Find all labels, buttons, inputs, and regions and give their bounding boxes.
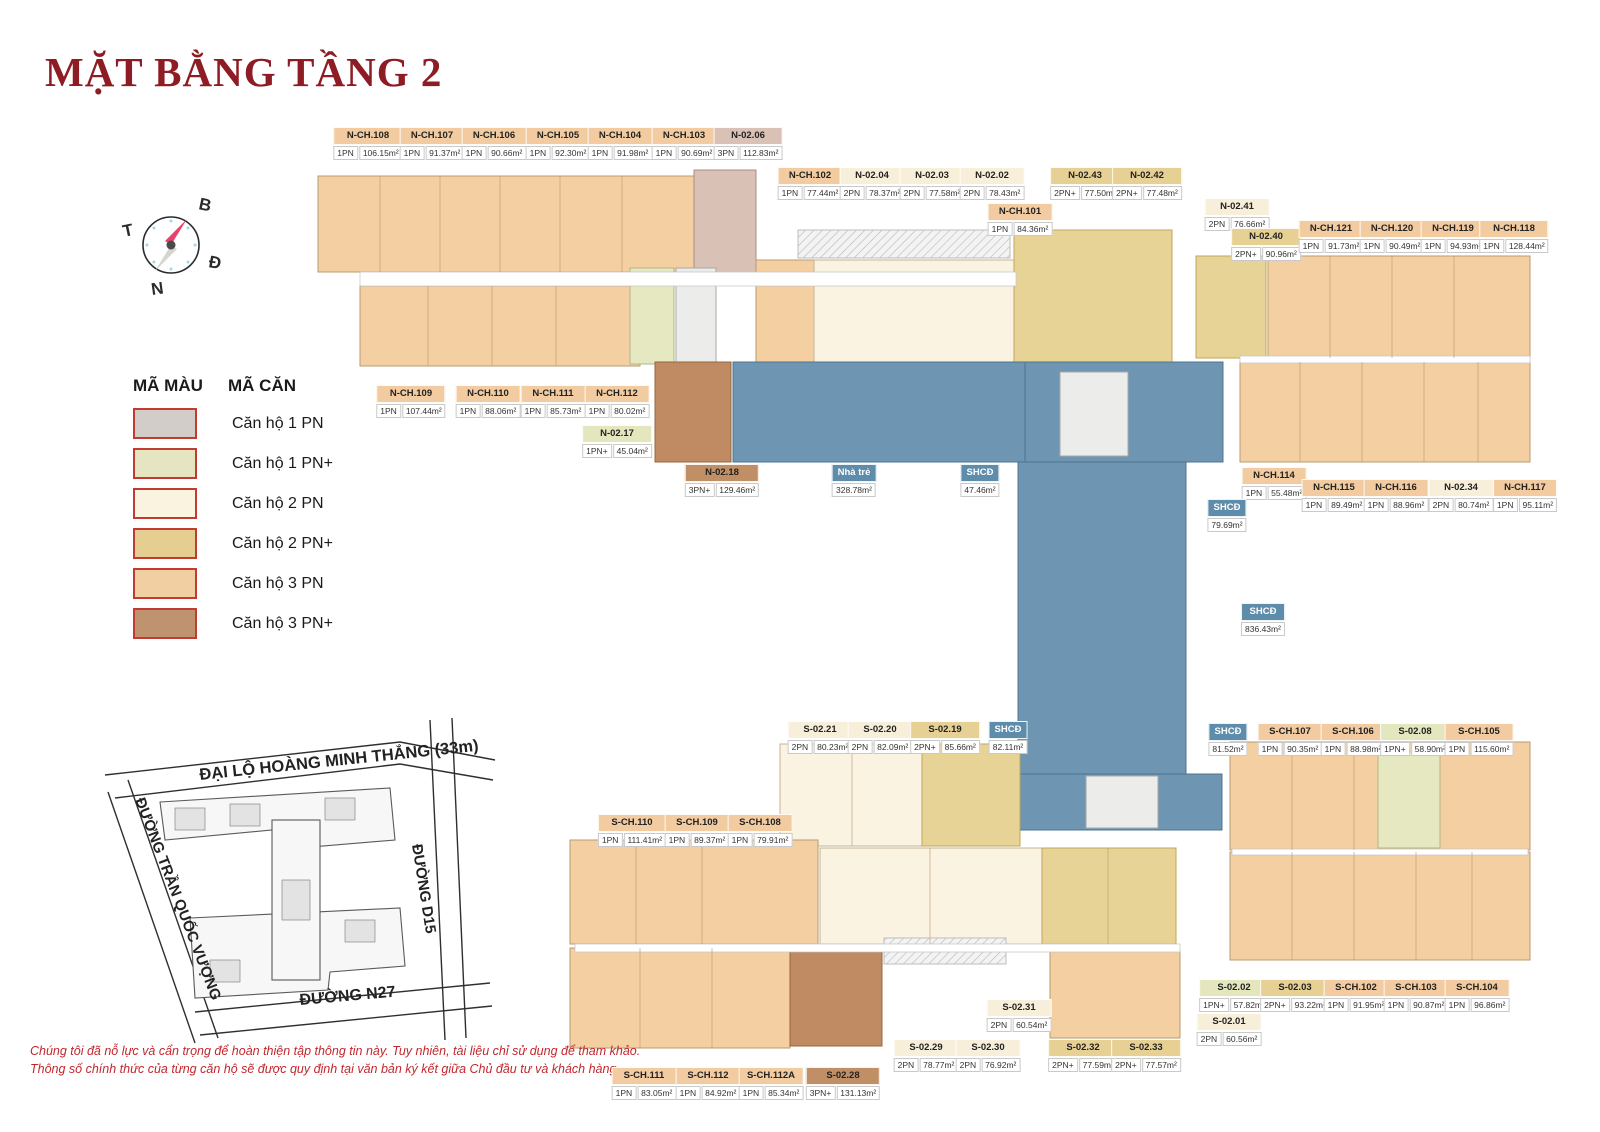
unit-label-N-CH.120: N-CH.1201PN90.49m² bbox=[1360, 220, 1425, 253]
legend-label-3PN: Căn hộ 3 PN bbox=[232, 575, 324, 593]
disclaimer-line-1: Chúng tôi đã nỗ lực và cẩn trọng để hoàn… bbox=[30, 1042, 640, 1060]
unit-bedrooms: 2PN+ bbox=[1048, 1058, 1078, 1073]
unit-bedrooms: 1PN bbox=[1445, 742, 1470, 757]
unit-area: 128.44m² bbox=[1505, 239, 1549, 254]
unit-info: 1PN77.44m² bbox=[778, 186, 843, 201]
unit-label-N-02.18: N-02.183PN+129.46m² bbox=[685, 464, 759, 497]
unit-info: 1PN91.98m² bbox=[588, 146, 653, 161]
unit-label-N-CH.114: N-CH.1141PN55.48m² bbox=[1242, 467, 1307, 500]
unit-bedrooms: 2PN bbox=[848, 740, 873, 755]
unit-label-S-02.02: S-02.021PN+57.82m² bbox=[1199, 979, 1269, 1012]
unit-label-S-CH.112: S-CH.1121PN84.92m² bbox=[676, 1067, 741, 1100]
unit-bedrooms: 2PN bbox=[840, 186, 865, 201]
unit-bedrooms: 2PN+ bbox=[1231, 247, 1261, 262]
unit-info: 3PN+131.13m² bbox=[806, 1086, 880, 1101]
unit-bedrooms: 3PN+ bbox=[806, 1086, 836, 1101]
unit-info: 1PN128.44m² bbox=[1479, 239, 1548, 254]
unit-label-SHCĐ: SHCĐ836.43m² bbox=[1241, 603, 1285, 636]
unit-label-SHCĐ: SHCĐ82.11m² bbox=[989, 721, 1028, 754]
compass-needle-north bbox=[165, 219, 187, 245]
unit-bedrooms: 3PN+ bbox=[685, 483, 715, 498]
unit-info: 2PN80.23m² bbox=[788, 740, 853, 755]
unit-area: 90.35m² bbox=[1283, 742, 1322, 757]
unit-bedrooms: 1PN bbox=[739, 1086, 764, 1101]
unit-label-N-02.34: N-02.342PN80.74m² bbox=[1429, 479, 1494, 512]
unit-area: 107.44m² bbox=[402, 404, 446, 419]
unit-label-N-CH.104: N-CH.1041PN91.98m² bbox=[588, 127, 653, 160]
unit-code: S-02.03 bbox=[1260, 979, 1330, 997]
unit-code: N-CH.120 bbox=[1360, 220, 1425, 238]
unit-label-S-CH.105: S-CH.1051PN115.60m² bbox=[1445, 723, 1514, 756]
unit-area: 77.58m² bbox=[925, 186, 964, 201]
unit-bedrooms: 1PN bbox=[400, 146, 425, 161]
unit-area: 328.78m² bbox=[832, 483, 876, 498]
unit-bedrooms: 1PN+ bbox=[1199, 998, 1229, 1013]
unit-label-S-02.33: S-02.332PN+77.57m² bbox=[1111, 1039, 1181, 1072]
unit-code: S-02.20 bbox=[848, 721, 913, 739]
unit-label-S-CH.107: S-CH.1071PN90.35m² bbox=[1258, 723, 1323, 756]
unit-label-N-02.03: N-02.032PN77.58m² bbox=[900, 167, 965, 200]
unit-info: 1PN55.48m² bbox=[1242, 486, 1307, 501]
unit-area: 88.06m² bbox=[481, 404, 520, 419]
legend-item-3PN: Căn hộ 3 PN bbox=[133, 568, 393, 599]
unit-info: 1PN90.87m² bbox=[1384, 998, 1449, 1013]
unit-info: 2PN+93.22m² bbox=[1260, 998, 1330, 1013]
unit-code: N-02.17 bbox=[582, 425, 652, 443]
unit-info: 79.69m² bbox=[1207, 518, 1246, 533]
unit-area: 91.95m² bbox=[1349, 998, 1388, 1013]
unit-code: S-02.01 bbox=[1197, 1013, 1262, 1031]
compass-label-west: T bbox=[121, 220, 136, 241]
unit-label-N-CH.108: N-CH.1081PN106.15m² bbox=[333, 127, 402, 160]
unit-info: 1PN90.49m² bbox=[1360, 239, 1425, 254]
unit-info: 82.11m² bbox=[989, 740, 1028, 755]
unit-info: 2PN82.09m² bbox=[848, 740, 913, 755]
unit-label-N-02.04: N-02.042PN78.37m² bbox=[840, 167, 905, 200]
unit-code: S-02.19 bbox=[910, 721, 980, 739]
unit-bedrooms: 2PN bbox=[900, 186, 925, 201]
unit-bedrooms: 1PN bbox=[652, 146, 677, 161]
plan-unit-S-02.28 bbox=[790, 948, 882, 1046]
unit-code: N-CH.119 bbox=[1421, 220, 1486, 238]
unit-bedrooms: 2PN+ bbox=[1112, 186, 1142, 201]
unit-code: N-02.34 bbox=[1429, 479, 1494, 497]
unit-code: N-CH.116 bbox=[1364, 479, 1429, 497]
unit-code: S-CH.103 bbox=[1384, 979, 1449, 997]
plan-block-south-left-top bbox=[570, 840, 818, 944]
unit-info: 1PN85.73m² bbox=[521, 404, 586, 419]
unit-area: 90.66m² bbox=[487, 146, 526, 161]
unit-bedrooms: 2PN+ bbox=[1260, 998, 1290, 1013]
legend-swatch-3PN bbox=[133, 568, 197, 599]
unit-bedrooms: 1PN bbox=[612, 1086, 637, 1101]
unit-area: 82.11m² bbox=[989, 740, 1028, 755]
unit-label-N-CH.118: N-CH.1181PN128.44m² bbox=[1479, 220, 1548, 253]
unit-code: N-CH.112 bbox=[585, 385, 650, 403]
unit-code: S-CH.110 bbox=[598, 814, 666, 832]
unit-label-S-02.01: S-02.012PN60.56m² bbox=[1197, 1013, 1262, 1046]
unit-code: N-CH.107 bbox=[400, 127, 465, 145]
unit-label-S-CH.102: S-CH.1021PN91.95m² bbox=[1324, 979, 1389, 1012]
unit-label-S-02.20: S-02.202PN82.09m² bbox=[848, 721, 913, 754]
unit-code: S-02.08 bbox=[1380, 723, 1450, 741]
unit-info: 1PN107.44m² bbox=[376, 404, 445, 419]
unit-code: S-02.30 bbox=[956, 1039, 1021, 1057]
unit-code: N-CH.103 bbox=[652, 127, 717, 145]
unit-area: 89.37m² bbox=[690, 833, 729, 848]
unit-bedrooms: 1PN bbox=[1421, 239, 1446, 254]
unit-label-SHCĐ: SHCĐ81.52m² bbox=[1208, 723, 1247, 756]
unit-code: S-CH.112 bbox=[676, 1067, 741, 1085]
unit-info: 1PN85.34m² bbox=[739, 1086, 804, 1101]
unit-code: N-02.02 bbox=[960, 167, 1025, 185]
unit-bedrooms: 1PN bbox=[988, 222, 1013, 237]
plan-block-south-cluster bbox=[1050, 950, 1180, 1038]
unit-info: 1PN95.11m² bbox=[1493, 498, 1557, 513]
unit-area: 84.36m² bbox=[1013, 222, 1052, 237]
unit-code: N-02.18 bbox=[685, 464, 759, 482]
plan-corridor-north bbox=[360, 272, 1016, 286]
unit-info: 1PN91.73m² bbox=[1299, 239, 1364, 254]
unit-code: S-CH.102 bbox=[1324, 979, 1389, 997]
unit-label-S-CH.106: S-CH.1061PN88.98m² bbox=[1321, 723, 1386, 756]
unit-area: 88.96m² bbox=[1389, 498, 1428, 513]
unit-code: N-CH.111 bbox=[521, 385, 586, 403]
unit-area: 79.69m² bbox=[1207, 518, 1246, 533]
unit-bedrooms: 1PN bbox=[1360, 239, 1385, 254]
plan-block-north-left-top bbox=[318, 176, 694, 272]
plan-core-south bbox=[1086, 776, 1158, 828]
unit-label-S-CH.108: S-CH.1081PN79.91m² bbox=[728, 814, 793, 847]
unit-area: 92.30m² bbox=[551, 146, 590, 161]
unit-code: S-02.32 bbox=[1048, 1039, 1118, 1057]
unit-label-N-CH.115: N-CH.1151PN89.49m² bbox=[1302, 479, 1367, 512]
legend-header-unit: MÃ CĂN bbox=[228, 376, 296, 396]
unit-area: 106.15m² bbox=[359, 146, 403, 161]
unit-area: 47.46m² bbox=[960, 483, 999, 498]
unit-area: 91.98m² bbox=[613, 146, 652, 161]
unit-info: 1PN80.02m² bbox=[585, 404, 650, 419]
unit-bedrooms: 1PN bbox=[1445, 998, 1470, 1013]
unit-label-N-CH.116: N-CH.1161PN88.96m² bbox=[1364, 479, 1429, 512]
unit-info: 1PN83.05m² bbox=[612, 1086, 677, 1101]
unit-label-S-CH.110: S-CH.1101PN111.41m² bbox=[598, 814, 666, 847]
unit-bedrooms: 1PN+ bbox=[582, 444, 612, 459]
unit-area: 83.05m² bbox=[637, 1086, 676, 1101]
unit-info: 2PN60.54m² bbox=[987, 1018, 1052, 1033]
unit-label-N-CH.119: N-CH.1191PN94.93m² bbox=[1421, 220, 1486, 253]
unit-code: S-02.28 bbox=[806, 1067, 880, 1085]
legend: MÃ MÀU MÃ CĂN Căn hộ 1 PNCăn hộ 1 PN+Căn… bbox=[133, 376, 393, 648]
unit-bedrooms: 1PN bbox=[1364, 498, 1389, 513]
unit-bedrooms: 1PN bbox=[521, 404, 546, 419]
plan-corridor-south-right bbox=[1232, 849, 1528, 855]
unit-code: S-CH.104 bbox=[1445, 979, 1510, 997]
unit-code: Nhà trẻ bbox=[832, 464, 877, 482]
unit-area: 60.56m² bbox=[1222, 1032, 1261, 1047]
unit-bedrooms: 1PN bbox=[778, 186, 803, 201]
unit-bedrooms: 1PN bbox=[1302, 498, 1327, 513]
legend-swatch-1PN bbox=[133, 408, 197, 439]
unit-label-S-02.31: S-02.312PN60.54m² bbox=[987, 999, 1052, 1032]
unit-label-S-02.19: S-02.192PN+85.66m² bbox=[910, 721, 980, 754]
unit-info: 1PN+45.04m² bbox=[582, 444, 652, 459]
unit-code: N-CH.109 bbox=[376, 385, 445, 403]
unit-label-N-CH.112: N-CH.1121PN80.02m² bbox=[585, 385, 650, 418]
unit-area: 80.02m² bbox=[610, 404, 649, 419]
unit-bedrooms: 2PN+ bbox=[1050, 186, 1080, 201]
unit-code: N-CH.117 bbox=[1493, 479, 1557, 497]
unit-info: 328.78m² bbox=[832, 483, 877, 498]
unit-bedrooms: 1PN bbox=[456, 404, 481, 419]
unit-label-N-CH.101: N-CH.1011PN84.36m² bbox=[988, 203, 1053, 236]
unit-label-S-02.03: S-02.032PN+93.22m² bbox=[1260, 979, 1330, 1012]
unit-area: 76.92m² bbox=[981, 1058, 1020, 1073]
unit-bedrooms: 1PN bbox=[588, 146, 613, 161]
unit-label-S-CH.103: S-CH.1031PN90.87m² bbox=[1384, 979, 1449, 1012]
unit-info: 2PN80.74m² bbox=[1429, 498, 1494, 513]
unit-code: N-02.40 bbox=[1231, 228, 1301, 246]
unit-label-N-02.17: N-02.171PN+45.04m² bbox=[582, 425, 652, 458]
unit-code: S-CH.109 bbox=[665, 814, 730, 832]
unit-info: 2PN+85.66m² bbox=[910, 740, 980, 755]
legend-item-1PN+: Căn hộ 1 PN+ bbox=[133, 448, 393, 479]
unit-area: 90.87m² bbox=[1409, 998, 1448, 1013]
unit-label-N-CH.110: N-CH.1101PN88.06m² bbox=[456, 385, 521, 418]
compass-label-north: B bbox=[197, 194, 213, 215]
plan-unit-N-02.18 bbox=[655, 362, 731, 462]
unit-bedrooms: 1PN bbox=[1493, 498, 1518, 513]
unit-code: N-CH.118 bbox=[1479, 220, 1548, 238]
plan-block-shcd-spine bbox=[1018, 462, 1186, 774]
unit-info: 1PN84.36m² bbox=[988, 222, 1053, 237]
unit-label-SHCĐ: SHCĐ47.46m² bbox=[960, 464, 999, 497]
unit-label-N-CH.105: N-CH.1051PN92.30m² bbox=[526, 127, 591, 160]
page-title: MẶT BẰNG TẦNG 2 bbox=[45, 48, 442, 96]
plan-block-nha-tre bbox=[733, 362, 1025, 462]
unit-code: N-CH.102 bbox=[778, 167, 843, 185]
unit-label-N-02.43: N-02.432PN+77.50m² bbox=[1050, 167, 1120, 200]
unit-area: 91.37m² bbox=[425, 146, 464, 161]
compass-icon: B T Đ N bbox=[118, 185, 228, 300]
unit-bedrooms: 2PN bbox=[788, 740, 813, 755]
unit-label-N-CH.121: N-CH.1211PN91.73m² bbox=[1299, 220, 1364, 253]
unit-info: 1PN92.30m² bbox=[526, 146, 591, 161]
unit-code: SHCĐ bbox=[989, 721, 1028, 739]
unit-info: 1PN96.86m² bbox=[1445, 998, 1510, 1013]
unit-info: 1PN88.06m² bbox=[456, 404, 521, 419]
unit-code: N-02.04 bbox=[840, 167, 905, 185]
unit-info: 1PN79.91m² bbox=[728, 833, 793, 848]
plan-unit-N-02.06 bbox=[694, 170, 756, 274]
floor-plan-page: MẶT BẰNG TẦNG 2 B T Đ N MÃ MÀU MÃ CĂN Că… bbox=[0, 0, 1600, 1132]
unit-area: 78.43m² bbox=[985, 186, 1024, 201]
unit-code: N-CH.106 bbox=[462, 127, 527, 145]
unit-bedrooms: 1PN bbox=[665, 833, 690, 848]
plan-block-south-tan bbox=[1042, 848, 1176, 944]
unit-code: SHCĐ bbox=[1241, 603, 1285, 621]
disclaimer: Chúng tôi đã nỗ lực và cẩn trọng để hoàn… bbox=[30, 1042, 640, 1078]
unit-code: S-02.31 bbox=[987, 999, 1052, 1017]
unit-area: 836.43m² bbox=[1241, 622, 1285, 637]
plan-block-south-left-bottom bbox=[570, 948, 790, 1048]
unit-code: S-CH.105 bbox=[1445, 723, 1514, 741]
unit-info: 2PN+77.48m² bbox=[1112, 186, 1182, 201]
unit-info: 1PN90.35m² bbox=[1258, 742, 1323, 757]
legend-item-1PN: Căn hộ 1 PN bbox=[133, 408, 393, 439]
unit-info: 1PN91.95m² bbox=[1324, 998, 1389, 1013]
unit-code: SHCĐ bbox=[960, 464, 999, 482]
unit-label-N-CH.109: N-CH.1091PN107.44m² bbox=[376, 385, 445, 418]
unit-label-S-02.30: S-02.302PN76.92m² bbox=[956, 1039, 1021, 1072]
unit-bedrooms: 1PN bbox=[598, 833, 623, 848]
unit-bedrooms: 1PN bbox=[526, 146, 551, 161]
unit-code: N-CH.110 bbox=[456, 385, 521, 403]
unit-code: N-02.42 bbox=[1112, 167, 1182, 185]
unit-info: 2PN+77.57m² bbox=[1111, 1058, 1181, 1073]
legend-swatch-2PN bbox=[133, 488, 197, 519]
unit-bedrooms: 1PN bbox=[585, 404, 610, 419]
unit-info: 2PN76.92m² bbox=[956, 1058, 1021, 1073]
unit-label-S-02.32: S-02.322PN+77.59m² bbox=[1048, 1039, 1118, 1072]
unit-area: 80.74m² bbox=[1454, 498, 1493, 513]
unit-info: 1PN90.69m² bbox=[652, 146, 717, 161]
unit-label-S-CH.109: S-CH.1091PN89.37m² bbox=[665, 814, 730, 847]
unit-area: 79.91m² bbox=[753, 833, 792, 848]
unit-area: 45.04m² bbox=[613, 444, 652, 459]
unit-code: S-CH.106 bbox=[1321, 723, 1386, 741]
unit-code: S-CH.112A bbox=[739, 1067, 804, 1085]
unit-bedrooms: 2PN bbox=[987, 1018, 1012, 1033]
unit-code: S-CH.108 bbox=[728, 814, 793, 832]
legend-swatch-3PN+ bbox=[133, 608, 197, 639]
unit-code: S-02.02 bbox=[1199, 979, 1269, 997]
unit-info: 2PN78.77m² bbox=[894, 1058, 959, 1073]
legend-label-1PN+: Căn hộ 1 PN+ bbox=[232, 455, 333, 473]
unit-area: 85.73m² bbox=[546, 404, 585, 419]
unit-area: 85.66m² bbox=[941, 740, 980, 755]
unit-info: 1PN+58.90m² bbox=[1380, 742, 1450, 757]
unit-area: 78.77m² bbox=[919, 1058, 958, 1073]
plan-block-south-mid-top bbox=[780, 744, 922, 846]
unit-label-N-CH.103: N-CH.1031PN90.69m² bbox=[652, 127, 717, 160]
unit-label-SHCĐ: SHCĐ79.69m² bbox=[1207, 499, 1246, 532]
unit-bedrooms: 1PN bbox=[1479, 239, 1504, 254]
unit-info: 2PN+77.59m² bbox=[1048, 1058, 1118, 1073]
unit-label-N-CH.102: N-CH.1021PN77.44m² bbox=[778, 167, 843, 200]
unit-bedrooms: 2PN bbox=[1205, 217, 1230, 232]
legend-swatch-1PN+ bbox=[133, 448, 197, 479]
unit-bedrooms: 1PN bbox=[333, 146, 358, 161]
disclaimer-line-2: Thông số chính thức của từng căn hộ sẽ đ… bbox=[30, 1060, 640, 1078]
compass-label-south: N bbox=[150, 278, 165, 299]
unit-code: S-02.29 bbox=[894, 1039, 959, 1057]
plan-block-south-mid-bottom bbox=[820, 848, 1042, 944]
unit-bedrooms: 1PN+ bbox=[1380, 742, 1410, 757]
unit-code: N-02.06 bbox=[714, 127, 783, 145]
unit-bedrooms: 1PN bbox=[1321, 742, 1346, 757]
legend-label-1PN: Căn hộ 1 PN bbox=[232, 415, 324, 433]
legend-label-2PN+: Căn hộ 2 PN+ bbox=[232, 535, 333, 553]
unit-bedrooms: 2PN bbox=[1429, 498, 1454, 513]
unit-label-Nhà-trẻ: Nhà trẻ328.78m² bbox=[832, 464, 877, 497]
unit-info: 2PN+90.96m² bbox=[1231, 247, 1301, 262]
unit-label-N-02.02: N-02.022PN78.43m² bbox=[960, 167, 1025, 200]
unit-info: 1PN89.37m² bbox=[665, 833, 730, 848]
unit-label-S-02.28: S-02.283PN+131.13m² bbox=[806, 1067, 880, 1100]
unit-area: 90.96m² bbox=[1262, 247, 1301, 262]
unit-info: 2PN77.58m² bbox=[900, 186, 965, 201]
unit-area: 77.44m² bbox=[803, 186, 842, 201]
unit-bedrooms: 1PN bbox=[1242, 486, 1267, 501]
unit-bedrooms: 2PN bbox=[1197, 1032, 1222, 1047]
unit-code: S-CH.107 bbox=[1258, 723, 1323, 741]
unit-label-S-02.29: S-02.292PN78.77m² bbox=[894, 1039, 959, 1072]
unit-area: 111.41m² bbox=[623, 833, 666, 848]
unit-code: N-CH.101 bbox=[988, 203, 1053, 221]
unit-area: 112.83m² bbox=[739, 146, 782, 161]
unit-info: 1PN84.92m² bbox=[676, 1086, 741, 1101]
unit-info: 1PN111.41m² bbox=[598, 833, 666, 848]
unit-area: 95.11m² bbox=[1518, 498, 1557, 513]
unit-area: 84.92m² bbox=[701, 1086, 740, 1101]
unit-code: N-02.03 bbox=[900, 167, 965, 185]
unit-label-S-02.21: S-02.212PN80.23m² bbox=[788, 721, 853, 754]
legend-item-2PN+: Căn hộ 2 PN+ bbox=[133, 528, 393, 559]
plan-block-north-right-bottom bbox=[1240, 362, 1530, 462]
location-map: ĐẠI LỘ HOÀNG MINH THẮNG (33m) ĐƯỜNG TRẦN… bbox=[100, 680, 500, 1045]
unit-info: 1PN91.37m² bbox=[400, 146, 465, 161]
unit-bedrooms: 1PN bbox=[376, 404, 401, 419]
unit-info: 47.46m² bbox=[960, 483, 999, 498]
unit-code: S-CH.111 bbox=[612, 1067, 677, 1085]
plan-unit-N-02.41-40 bbox=[1196, 256, 1266, 358]
unit-area: 77.48m² bbox=[1143, 186, 1182, 201]
unit-label-S-02.08: S-02.081PN+58.90m² bbox=[1380, 723, 1450, 756]
unit-area: 129.46m² bbox=[715, 483, 759, 498]
unit-info: 2PN78.43m² bbox=[960, 186, 1025, 201]
unit-bedrooms: 1PN bbox=[1299, 239, 1324, 254]
unit-info: 1PN94.93m² bbox=[1421, 239, 1486, 254]
plan-balcony-hatch-north bbox=[798, 230, 1010, 258]
plan-block-south-right-bottom bbox=[1230, 852, 1530, 960]
unit-bedrooms: 1PN bbox=[1258, 742, 1283, 757]
unit-bedrooms: 2PN bbox=[894, 1058, 919, 1073]
unit-info: 3PN112.83m² bbox=[714, 146, 783, 161]
legend-header-color: MÃ MÀU bbox=[133, 376, 228, 396]
unit-label-N-02.42: N-02.422PN+77.48m² bbox=[1112, 167, 1182, 200]
unit-label-S-CH.112A: S-CH.112A1PN85.34m² bbox=[739, 1067, 804, 1100]
unit-code: S-02.21 bbox=[788, 721, 853, 739]
unit-code: N-CH.104 bbox=[588, 127, 653, 145]
unit-label-N-02.41: N-02.412PN76.66m² bbox=[1205, 198, 1270, 231]
unit-area: 89.49m² bbox=[1327, 498, 1366, 513]
unit-info: 1PN+57.82m² bbox=[1199, 998, 1269, 1013]
unit-info: 1PN90.66m² bbox=[462, 146, 527, 161]
plan-block-north-cluster bbox=[1014, 230, 1172, 362]
unit-bedrooms: 1PN bbox=[462, 146, 487, 161]
unit-area: 115.60m² bbox=[1470, 742, 1513, 757]
unit-info: 1PN88.98m² bbox=[1321, 742, 1386, 757]
unit-area: 82.09m² bbox=[873, 740, 912, 755]
unit-label-N-02.06: N-02.063PN112.83m² bbox=[714, 127, 783, 160]
plan-unit-S-02.08 bbox=[1378, 752, 1440, 848]
unit-code: S-02.33 bbox=[1111, 1039, 1181, 1057]
unit-info: 836.43m² bbox=[1241, 622, 1285, 637]
unit-bedrooms: 1PN bbox=[728, 833, 753, 848]
unit-bedrooms: 2PN bbox=[960, 186, 985, 201]
street-label-d15: ĐƯỜNG D15 bbox=[408, 843, 440, 935]
